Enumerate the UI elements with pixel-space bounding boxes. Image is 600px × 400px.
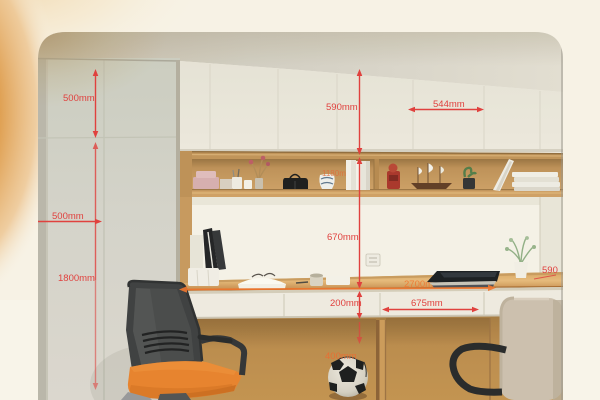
svg-text:500mm: 500mm: [52, 211, 84, 222]
svg-text:590: 590: [542, 265, 558, 276]
svg-text:670mm: 670mm: [327, 232, 359, 243]
svg-text:544mm: 544mm: [433, 99, 465, 110]
svg-text:1800mm: 1800mm: [58, 273, 95, 284]
svg-text:590mm: 590mm: [326, 102, 358, 113]
svg-text:675mm: 675mm: [411, 298, 443, 309]
svg-text:400mm: 400mm: [325, 351, 357, 362]
svg-text:200mm: 200mm: [330, 298, 362, 309]
svg-text:500mm: 500mm: [63, 93, 95, 104]
